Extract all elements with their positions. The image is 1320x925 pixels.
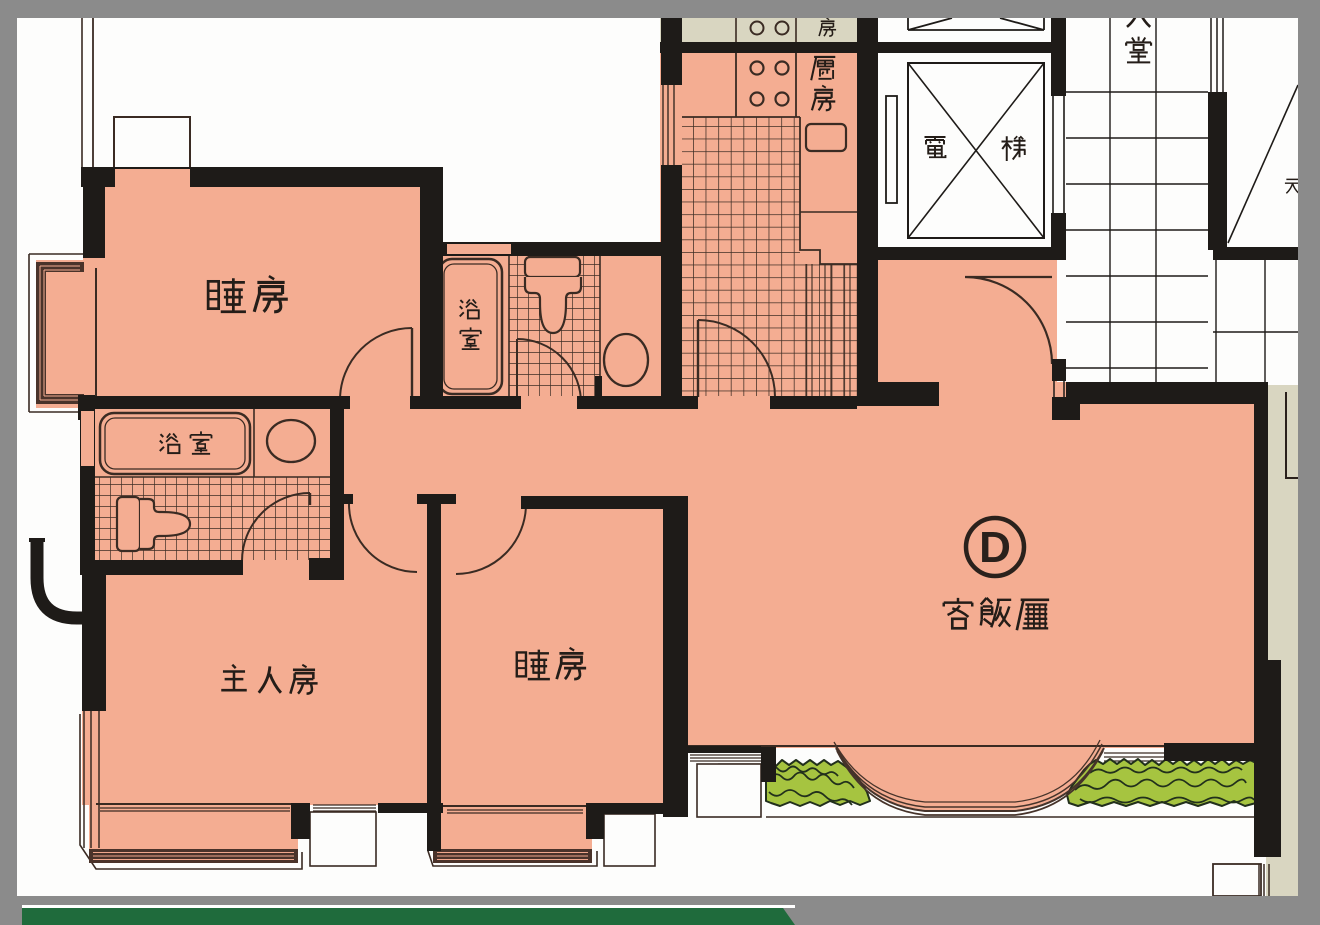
svg-text:D: D	[979, 523, 1011, 572]
